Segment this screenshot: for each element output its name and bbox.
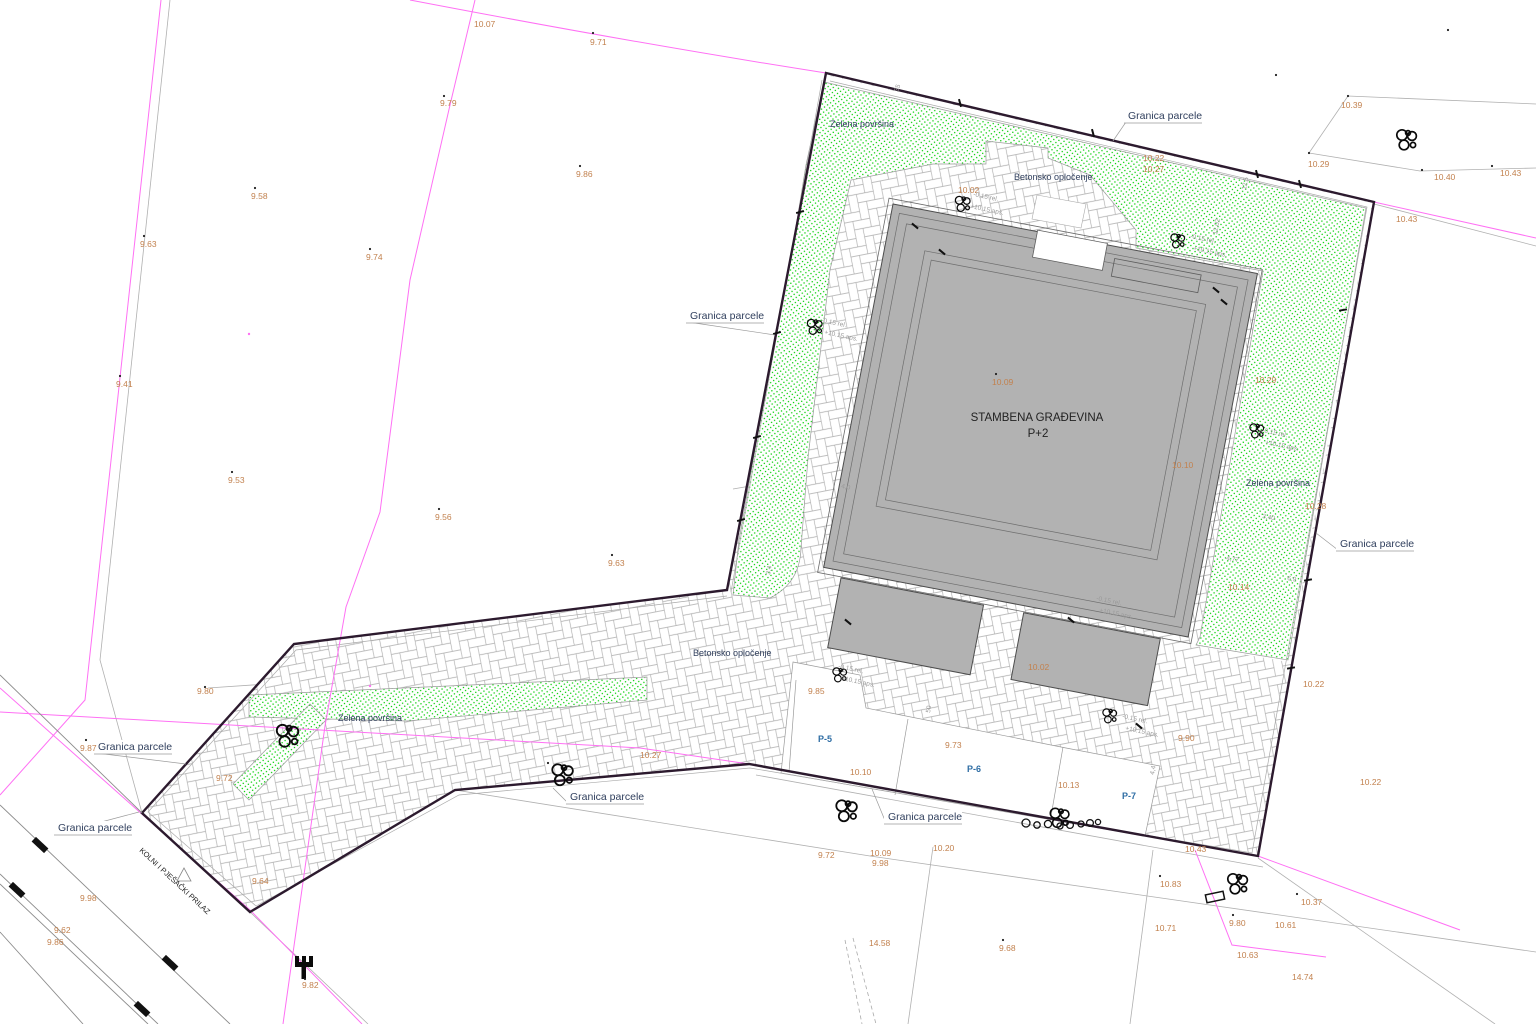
svg-text:Zelena površina: Zelena površina (338, 713, 402, 723)
svg-text:9.79: 9.79 (440, 98, 457, 108)
svg-text:P-7: P-7 (1122, 791, 1136, 801)
svg-text:10.22: 10.22 (1143, 153, 1165, 163)
svg-text:9.58: 9.58 (251, 191, 268, 201)
svg-text:10.10: 10.10 (850, 767, 872, 777)
svg-text:9.72: 9.72 (216, 773, 233, 783)
svg-text:14.58: 14.58 (869, 938, 891, 948)
svg-text:9.56: 9.56 (435, 512, 452, 522)
svg-text:9.71: 9.71 (590, 37, 607, 47)
svg-text:Granica parcele: Granica parcele (1128, 110, 1202, 122)
svg-text:10.27: 10.27 (640, 750, 662, 760)
svg-text:10.61: 10.61 (1275, 920, 1297, 930)
svg-text:Zelena površina: Zelena površina (830, 119, 894, 129)
svg-text:9.90: 9.90 (1178, 733, 1195, 743)
svg-text:9.82: 9.82 (302, 980, 319, 990)
svg-text:9.73: 9.73 (945, 740, 962, 750)
svg-text:9.98: 9.98 (80, 893, 97, 903)
svg-text:10.71: 10.71 (1155, 923, 1177, 933)
svg-text:9.68: 9.68 (999, 943, 1016, 953)
svg-text:Granica parcele: Granica parcele (690, 310, 764, 322)
svg-text:10.40: 10.40 (1434, 172, 1456, 182)
svg-text:10.13: 10.13 (1058, 780, 1080, 790)
svg-text:10.28: 10.28 (1305, 501, 1327, 511)
svg-text:10.02: 10.02 (1028, 662, 1050, 672)
svg-text:9.53: 9.53 (228, 475, 245, 485)
svg-text:9.85: 9.85 (808, 686, 825, 696)
svg-text:9.87: 9.87 (80, 743, 97, 753)
svg-text:9.98: 9.98 (872, 858, 889, 868)
svg-text:10.29: 10.29 (1255, 375, 1277, 385)
svg-text:10.43: 10.43 (1185, 844, 1207, 854)
svg-text:9.80: 9.80 (1229, 918, 1246, 928)
svg-text:P+2: P+2 (1028, 428, 1049, 440)
svg-text:10.43: 10.43 (1396, 214, 1418, 224)
svg-text:Granica parcele: Granica parcele (570, 791, 644, 803)
svg-text:Zelena površina: Zelena površina (1246, 478, 1310, 488)
svg-text:10.14: 10.14 (1228, 582, 1250, 592)
svg-text:10.29: 10.29 (1308, 159, 1330, 169)
svg-text:9.63: 9.63 (608, 558, 625, 568)
svg-text:10.20: 10.20 (933, 843, 955, 853)
svg-text:10.07: 10.07 (474, 19, 496, 29)
svg-text:10.37: 10.37 (1301, 897, 1323, 907)
svg-text:P-5: P-5 (818, 734, 832, 744)
svg-text:10.39: 10.39 (1341, 100, 1363, 110)
svg-text:9.62: 9.62 (54, 925, 71, 935)
svg-text:14.74: 14.74 (1292, 972, 1314, 982)
svg-text:9.63: 9.63 (140, 239, 157, 249)
svg-text:Betonsko opločenje: Betonsko opločenje (693, 648, 772, 658)
svg-text:9.86: 9.86 (576, 169, 593, 179)
svg-text:P-6: P-6 (967, 764, 981, 774)
svg-text:10.27: 10.27 (1143, 164, 1165, 174)
svg-text:Granica parcele: Granica parcele (98, 741, 172, 753)
svg-text:9.64: 9.64 (252, 876, 269, 886)
svg-text:STAMBENA GRAĐEVINA: STAMBENA GRAĐEVINA (971, 412, 1104, 424)
svg-text:10.43: 10.43 (1500, 168, 1522, 178)
svg-text:Granica parcele: Granica parcele (58, 822, 132, 834)
svg-text:Granica parcele: Granica parcele (1340, 538, 1414, 550)
svg-text:10.63: 10.63 (1237, 950, 1259, 960)
svg-text:9.41: 9.41 (116, 379, 133, 389)
svg-text:10.83: 10.83 (1160, 879, 1182, 889)
svg-text:9.74: 9.74 (366, 252, 383, 262)
svg-text:Granica parcele: Granica parcele (888, 811, 962, 823)
svg-text:10.10: 10.10 (1172, 460, 1194, 470)
svg-text:9.86: 9.86 (47, 937, 64, 947)
svg-text:10.09: 10.09 (992, 377, 1014, 387)
svg-text:10.09: 10.09 (870, 848, 892, 858)
svg-text:10.22: 10.22 (1303, 679, 1325, 689)
svg-text:Betonsko opločenje: Betonsko opločenje (1014, 172, 1093, 182)
svg-text:10.22: 10.22 (1360, 777, 1382, 787)
svg-text:9.72: 9.72 (818, 850, 835, 860)
